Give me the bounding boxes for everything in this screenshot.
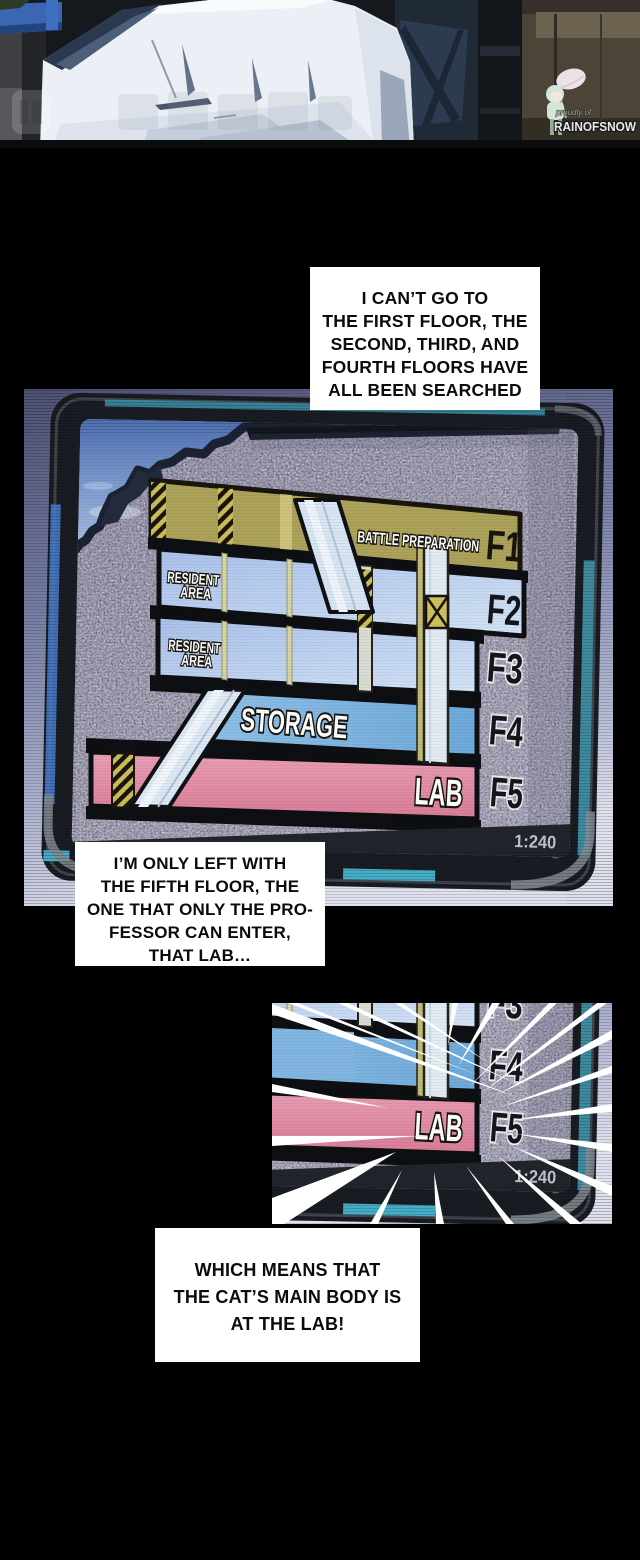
svg-text:RAINOFSNOW: RAINOFSNOW	[554, 120, 636, 134]
svg-text:proudly of: proudly of	[555, 108, 592, 117]
